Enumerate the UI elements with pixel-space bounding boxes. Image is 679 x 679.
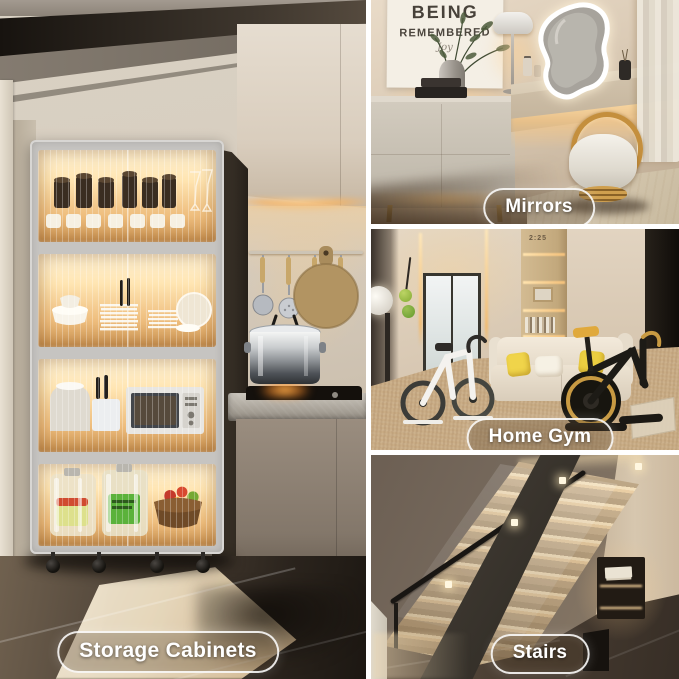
curtain — [637, 0, 679, 162]
storage-cabinets-photo: Storage Cabinets — [0, 0, 366, 679]
caster-wheel — [92, 552, 106, 574]
stairs-photo: Stairs — [371, 455, 679, 679]
badge-mirrors: Mirrors — [483, 188, 595, 224]
door-frame — [0, 80, 13, 560]
square-wall-light — [511, 519, 518, 526]
cabinet-tier-bottles-produce — [38, 464, 216, 546]
square-wall-light — [635, 463, 642, 470]
shelf-decor-numbers: 2:25 — [529, 235, 547, 242]
square-wall-light — [445, 581, 452, 588]
square-wall-light — [559, 477, 566, 484]
home-gym-photo: 2:25 — [371, 229, 679, 450]
yellow-pillow — [506, 352, 532, 378]
reed-diffuser — [619, 60, 631, 80]
badge-storage-cabinets: Storage Cabinets — [57, 631, 279, 673]
niche-led-strip — [600, 607, 642, 609]
led-vanity-mirror — [527, 0, 623, 120]
shelf-led-strip — [523, 281, 565, 284]
under-stair-shelf-niche — [597, 557, 645, 619]
caster-wheel — [150, 552, 164, 574]
caster-wheel — [46, 552, 60, 574]
cooktop-knob — [332, 392, 338, 398]
cabinet-tier-appliances — [38, 359, 216, 452]
cooking-pot — [244, 312, 328, 388]
led-strip-applications-collage: Storage Cabinets BEING REMEMBERED Joy — [0, 0, 679, 679]
badge-home-gym: Home Gym — [467, 418, 614, 450]
vanity-stool-cushion — [569, 134, 637, 190]
stacked-storage-cabinet — [30, 140, 224, 554]
caster-wheel — [196, 552, 210, 574]
niche-books — [605, 566, 633, 578]
upper-cabinet — [237, 24, 366, 208]
niche-led-strip — [600, 585, 642, 587]
cabinet-tier-glasses-jars — [38, 150, 216, 242]
cabinet-tier-dishes — [38, 254, 216, 347]
spin-bike-white — [393, 291, 505, 429]
mirrors-photo: BEING REMEMBERED Joy — [371, 0, 679, 224]
table-lamp-stem — [511, 34, 514, 90]
baseboard-glow — [373, 633, 469, 679]
shelf-led-strip — [523, 253, 565, 256]
exercise-bike-black — [547, 293, 673, 437]
storage-boxes — [415, 78, 467, 98]
badge-stairs: Stairs — [491, 634, 590, 674]
